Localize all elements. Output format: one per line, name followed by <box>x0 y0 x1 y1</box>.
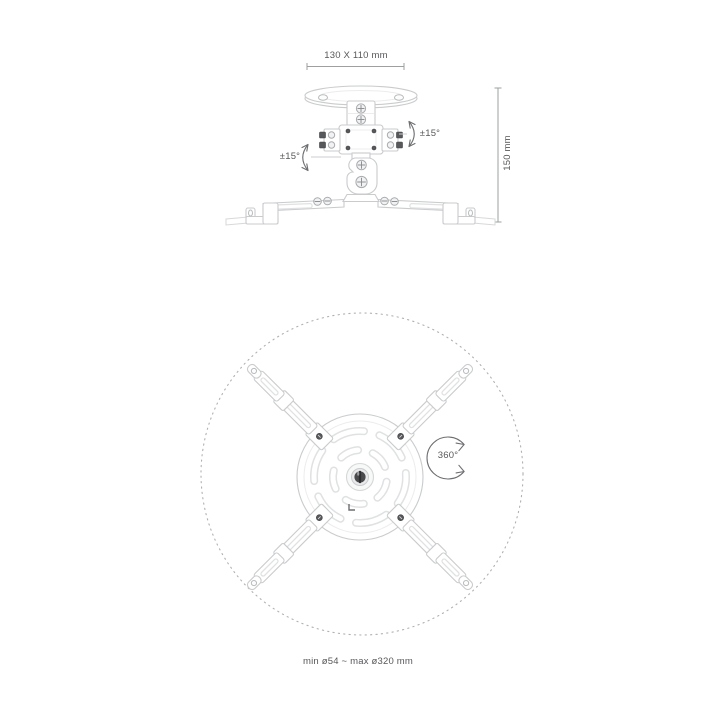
mount-illustrations <box>0 0 717 717</box>
width-dimension-label: 130 X 110 mm <box>296 50 416 62</box>
right-clamp <box>382 129 403 151</box>
mount-bottom-view <box>201 313 523 635</box>
spider-arm-sw <box>243 504 334 595</box>
tilt-right-label: ±15° <box>412 128 448 140</box>
height-dimension-label: 150 mm <box>502 131 514 175</box>
center-screw-boss <box>347 464 374 491</box>
left-clamp <box>320 129 341 151</box>
tilt-block <box>320 125 403 154</box>
side-mount-arms <box>226 195 495 226</box>
neck-bracket <box>347 101 375 126</box>
product-diagram-canvas: 130 X 110 mm 150 mm ±15° ±15° 360° min ø… <box>0 0 717 717</box>
right-hook <box>443 203 495 225</box>
spider-arm-nw <box>243 360 334 451</box>
tilt-left-label: ±15° <box>272 151 308 163</box>
height-dimension-line <box>495 88 502 222</box>
mount-side-view <box>226 63 502 225</box>
mount-range-label: min ø54 ~ max ø320 mm <box>238 656 478 668</box>
spider-arm-ne <box>387 360 478 451</box>
left-hook <box>226 203 278 225</box>
ball-joint <box>347 153 377 194</box>
rotation-label: 360° <box>428 450 468 462</box>
spider-arm-se <box>387 504 478 595</box>
width-dimension-line <box>307 63 404 70</box>
